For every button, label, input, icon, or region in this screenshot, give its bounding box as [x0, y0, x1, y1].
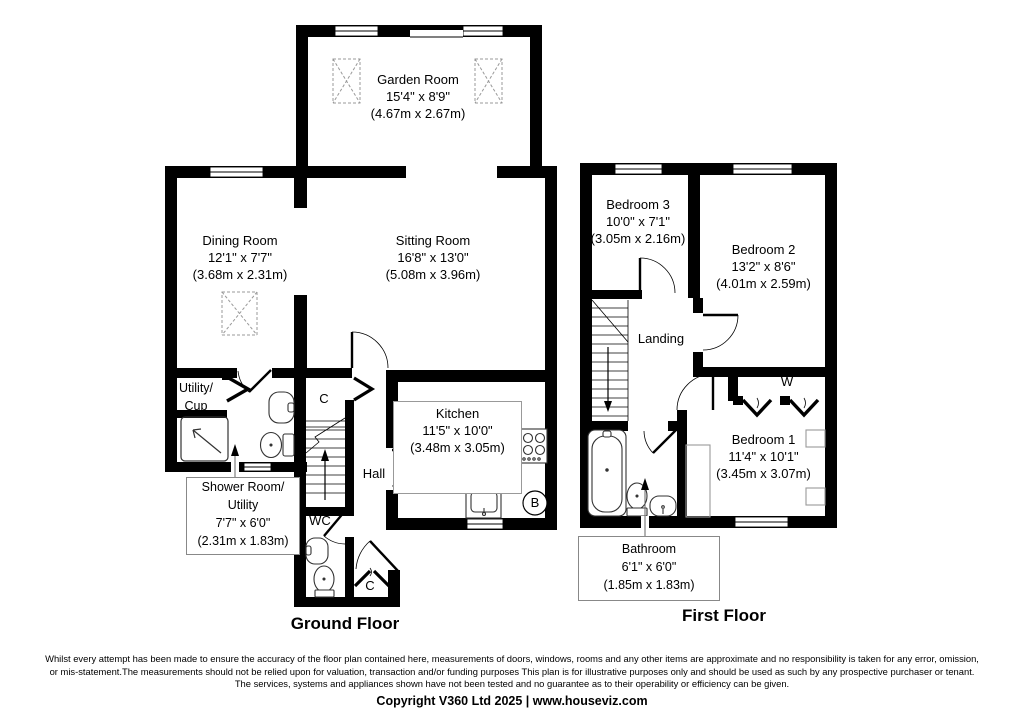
first-floor-title: First Floor — [644, 606, 804, 626]
room-label-sitting-room: Sitting Room 16'8" x 13'0" (5.08m x 3.96… — [343, 232, 523, 283]
room-name: Bedroom 2 — [695, 241, 832, 258]
room-name: Bedroom 3 — [572, 196, 704, 213]
room-name: Garden Room — [332, 71, 504, 88]
room-size-imperial: 7'7" x 6'0" — [187, 514, 299, 532]
cupboard-door-icon — [354, 378, 372, 400]
toilet-icon — [261, 433, 295, 458]
ground-floor-title: Ground Floor — [265, 614, 425, 634]
disclaimer-line: Whilst every attempt has been made to en… — [0, 653, 1024, 666]
disclaimer-footer: Whilst every attempt has been made to en… — [0, 653, 1024, 708]
room-label-hall: Hall — [352, 466, 396, 482]
room-name: Utility — [187, 496, 299, 514]
room-name: Sitting Room — [343, 232, 523, 249]
door-swing-icon — [677, 374, 713, 410]
floorplan-drawing — [0, 0, 1024, 723]
wardrobe-label: W — [770, 374, 804, 390]
door-swing-icon — [352, 332, 388, 368]
door-swing-icon — [640, 258, 675, 293]
ground-floor-stairs — [306, 418, 345, 500]
skylight-icon — [222, 292, 257, 335]
room-name: Dining Room — [157, 232, 323, 249]
room-size-metric: (5.08m x 3.96m) — [343, 266, 523, 283]
bath-icon — [588, 430, 626, 516]
leader-arrow — [231, 444, 239, 477]
floorplan-page: Garden Room 15'4" x 8'9" (4.67m x 2.67m)… — [0, 0, 1024, 723]
disclaimer-line: The services, systems and appliances sho… — [0, 678, 1024, 691]
room-name: Bedroom 1 — [697, 431, 830, 448]
room-label-dining-room: Dining Room 12'1" x 7'7" (3.68m x 2.31m) — [157, 232, 323, 283]
room-label-shower-room: Shower Room/ Utility 7'7" x 6'0" (2.31m … — [186, 477, 300, 555]
door-swing-icon — [703, 315, 738, 350]
basin-icon — [269, 392, 294, 423]
room-name: Cup — [167, 397, 225, 415]
room-name: Shower Room/ — [187, 478, 299, 496]
room-label-bedroom-3: Bedroom 3 10'0" x 7'1" (3.05m x 2.16m) — [572, 196, 704, 247]
room-size-metric: (3.45m x 3.07m) — [697, 465, 830, 482]
room-size-metric: (2.31m x 1.83m) — [187, 532, 299, 550]
door-swing-icon — [644, 430, 676, 453]
room-size-metric: (3.68m x 2.31m) — [157, 266, 323, 283]
wc-basin-icon — [306, 538, 328, 564]
cupboard-label-bottom: C — [358, 578, 382, 594]
basin-icon — [650, 496, 676, 516]
room-name: Kitchen — [394, 405, 521, 422]
stairs-icon — [592, 300, 628, 421]
room-label-garden-room: Garden Room 15'4" x 8'9" (4.67m x 2.67m) — [332, 71, 504, 122]
room-label-utility-cupboard: Utility/ Cup — [167, 379, 225, 415]
room-label-bedroom-1: Bedroom 1 11'4" x 10'1" (3.45m x 3.07m) — [697, 431, 830, 482]
room-size-imperial: 15'4" x 8'9" — [332, 88, 504, 105]
room-size-imperial: 16'8" x 13'0" — [343, 249, 523, 266]
cupboard-door-icon — [227, 377, 248, 401]
door-swing-icon — [238, 370, 271, 392]
wc-toilet-icon — [314, 566, 334, 597]
room-size-metric: (3.48m x 3.05m) — [394, 439, 521, 456]
room-size-metric: (1.85m x 1.83m) — [579, 576, 719, 594]
room-size-imperial: 11'4" x 10'1" — [697, 448, 830, 465]
shower-icon — [181, 417, 228, 461]
room-label-landing: Landing — [630, 331, 692, 347]
room-name: Utility/ — [167, 379, 225, 397]
copyright-line: Copyright V360 Ltd 2025 | www.houseviz.c… — [0, 694, 1024, 708]
hob-icon — [521, 429, 547, 463]
room-label-bathroom: Bathroom 6'1" x 6'0" (1.85m x 1.83m) — [578, 536, 720, 601]
room-size-imperial: 6'1" x 6'0" — [579, 558, 719, 576]
room-name: Bathroom — [579, 540, 719, 558]
room-label-bedroom-2: Bedroom 2 13'2" x 8'6" (4.01m x 2.59m) — [695, 241, 832, 292]
room-size-metric: (3.05m x 2.16m) — [572, 230, 704, 247]
door-swing-icon — [356, 541, 398, 571]
cupboard-label-top: C — [312, 391, 336, 407]
room-label-kitchen: Kitchen 11'5" x 10'0" (3.48m x 3.05m) — [393, 401, 522, 494]
room-size-metric: (4.01m x 2.59m) — [695, 275, 832, 292]
room-size-imperial: 10'0" x 7'1" — [572, 213, 704, 230]
room-label-wc: WC — [300, 513, 340, 529]
boiler-label: B — [523, 495, 547, 511]
stairs-icon — [306, 418, 345, 500]
room-size-imperial: 11'5" x 10'0" — [394, 422, 521, 439]
disclaimer-line: or mis-statement.The measurements should… — [0, 666, 1024, 679]
room-size-metric: (4.67m x 2.67m) — [332, 105, 504, 122]
room-size-imperial: 13'2" x 8'6" — [695, 258, 832, 275]
room-size-imperial: 12'1" x 7'7" — [157, 249, 323, 266]
first-floor-stairs — [592, 300, 628, 421]
